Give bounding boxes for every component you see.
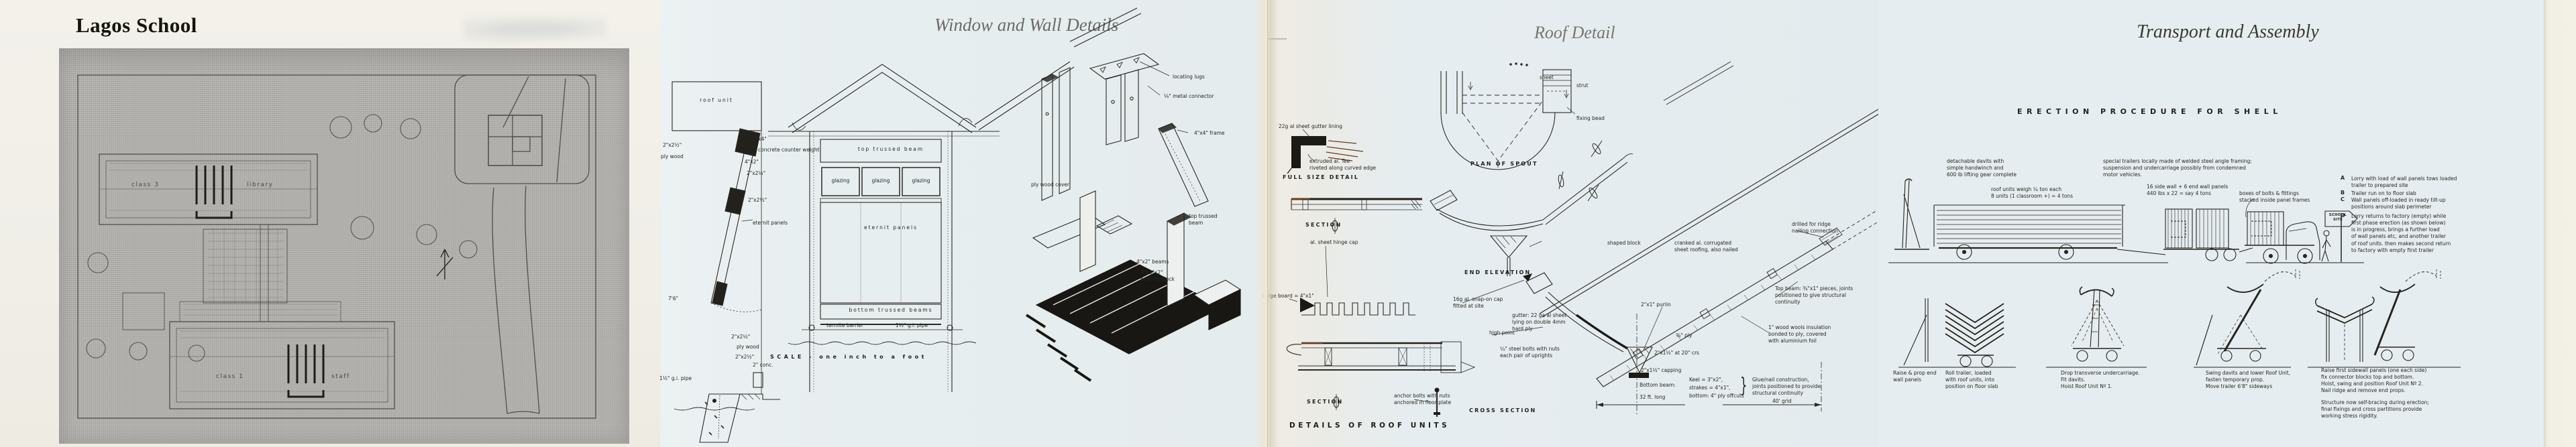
annotation-label: top trussed beam <box>830 146 951 153</box>
annotation-label: END ELEVATION <box>1464 269 1531 277</box>
annotation-label: bottom: 4" ply offcuts <box>1689 393 1744 399</box>
annotation-label: roof units weigh ¼ ton each 8 units (1 c… <box>1991 186 2073 200</box>
ink-bleed-ghost <box>463 11 607 46</box>
site-plan-photo <box>59 48 629 444</box>
annotation-label: 32 ft. long <box>1640 394 1665 401</box>
annotation-label: Structure now self-bracing during erecti… <box>2321 399 2429 420</box>
window-wall-drawing <box>661 0 1261 447</box>
annotation-label: 2"x2½" <box>748 197 767 204</box>
annotation-label: Bottom beam: <box>1640 382 1676 389</box>
annotation-label: sheet <box>1540 74 1554 81</box>
annotation-label: class 1 <box>216 373 244 381</box>
annotation-label: Keel = 3"x2", <box>1689 377 1723 383</box>
annotation-label: 1½" g.i. pipe <box>659 375 692 382</box>
annotation-label: gutter: 22 ga al sheet lying on double 4… <box>1512 312 1566 332</box>
annotation-label: termite barrier <box>826 322 863 329</box>
annotation-label: Swing davits and lower Roof Unit, fasten… <box>2206 370 2290 390</box>
annotation-label: Drop transverse undercarriage. Fit davit… <box>2061 370 2140 390</box>
annotation-label: 40' grid <box>1772 398 1792 405</box>
annotation-label: ⅛" metal connector <box>1164 93 1214 100</box>
annotation-label: SECTION <box>1307 399 1343 406</box>
annotation-label: Lorry with load of wall panels tows load… <box>2351 176 2457 189</box>
annotation-label: drilled for ridge nailing connection <box>1792 221 1838 235</box>
annotation-label: ⅜" ply <box>1676 332 1692 339</box>
annotation-label: eternit panels <box>830 225 951 231</box>
annotation-label: 4"x2" <box>745 159 759 166</box>
annotation-label: eternit panels <box>753 220 788 227</box>
annotation-label: ply wood <box>661 153 684 160</box>
annotation-label: SCALE - one inch to a foot <box>770 354 927 361</box>
annotation-label: D <box>2341 212 2345 220</box>
annotation-label: 2"x2½" <box>735 354 754 361</box>
annotation-label: 2"x1½" capping <box>1641 367 1681 374</box>
annotation-label: 4"x4" frame <box>1194 130 1225 137</box>
annotation-label: 2"x1" purlin <box>1641 302 1671 308</box>
annotation-label: concrete counter weight <box>758 147 820 153</box>
annotation-label: shaped block <box>1607 240 1641 247</box>
annotation-label: glazing <box>862 178 900 184</box>
annotation-label: 2"x2½" <box>747 170 765 177</box>
annotation-label: 4"x4" <box>753 136 767 143</box>
annotation-label: 16 side wall + 6 end wall panels 440 lbs… <box>2147 184 2228 197</box>
annotation-label: 2" conc. <box>753 362 773 369</box>
annotation-label: glazing <box>902 178 940 184</box>
annotation-label: C <box>2341 196 2345 204</box>
annotation-label: strut <box>1576 82 1589 89</box>
annotation-label: ¼" steel bolts with nuts each pair of up… <box>1500 346 1560 359</box>
annotation-label: anchor bolts with nuts anchored in floor… <box>1394 393 1451 406</box>
annotation-label: top trussed beam <box>1189 213 1218 227</box>
annotation-label: DETAILS OF ROOF UNITS <box>1289 421 1450 430</box>
annotation-label: Raise & prop end wall panels <box>1893 370 1936 383</box>
annotation-label: 1½" g.i. pipe <box>896 322 928 329</box>
annotation-label: locating lugs <box>1173 74 1205 80</box>
spine-line <box>1267 0 1268 447</box>
annotation-label: 2"x1½" at 20" crs <box>1654 350 1699 357</box>
annotation-label: Trailer run on to floor slab <box>2351 190 2416 197</box>
book-spread: Lagos School Window and Wall Details Roo… <box>0 0 2576 447</box>
annotation-label: 4"x2"x2" bearing block <box>1140 269 1175 283</box>
annotation-label: ply wood cover <box>1031 182 1069 188</box>
annotation-label: ply wood <box>737 344 759 350</box>
annotation-label: 4"x2" beams <box>1136 259 1169 265</box>
annotation-label: PLAN OF SPOUT <box>1470 161 1538 168</box>
annotation-label: detachable davits with simple handwinch … <box>1947 158 2017 178</box>
annotation-label: 16g al. snap-on cap fitted at site <box>1453 296 1503 310</box>
annotation-label: roof unit <box>683 97 750 104</box>
annotation-label: } <box>1740 373 1748 400</box>
annotation-label: Roll trailer, loaded with roof units, in… <box>1945 370 1998 390</box>
annotation-label: A <box>2341 175 2345 182</box>
annotation-label: fixing bead <box>1576 115 1605 122</box>
annotation-label: strakes = 4"x1", <box>1689 385 1730 391</box>
annotation-label: staff <box>331 373 350 381</box>
annotation-label: special trailers locally made of welded … <box>2103 158 2252 178</box>
annotation-label: bottom trussed beams <box>830 307 951 314</box>
site-plan-drawing <box>59 48 629 444</box>
page-title-lagos: Lagos School <box>76 13 197 38</box>
annotation-label: Glue/nail construction, joints positione… <box>1752 377 1821 397</box>
annotation-label: 2"x2½" <box>663 142 682 149</box>
annotation-label: boxes of bolts & fittings stacked inside… <box>2239 190 2310 204</box>
annotation-label: CROSS SECTION <box>1469 407 1536 415</box>
annotation-label: high point <box>1489 330 1515 336</box>
annotation-label: SCHOOL SITE <box>2325 213 2351 222</box>
annotation-label: al. sheet hinge cap <box>1310 239 1358 246</box>
annotation-label: SECTION <box>1305 222 1342 229</box>
page-right-edge <box>2544 0 2576 447</box>
annotation-label: Top beam: ¾"x1" pieces, joints positione… <box>1775 285 1853 306</box>
annotation-label: extruded al. Tee riveted along curved ed… <box>1309 158 1376 172</box>
annotation-label: library <box>247 181 273 189</box>
annotation-label: class 3 <box>131 181 159 189</box>
annotation-label: 2"x2½" <box>731 334 750 340</box>
annotation-label: Lorry returns to factory (empty) while f… <box>2351 213 2451 254</box>
annotation-label: Raise first sidewall panels (one each si… <box>2321 367 2426 395</box>
annotation-label: glazing <box>822 178 859 184</box>
annotation-label: 7'6" <box>668 296 678 302</box>
annotation-label: FULL SIZE DETAIL <box>1283 174 1359 182</box>
annotation-label: Wall panels off-loaded in ready tilt-up … <box>2351 197 2446 210</box>
annotation-label: cranked al. corrugated sheet roofing, al… <box>1674 240 1738 253</box>
annotation-label: 1" wood wools insulation bonded to ply, … <box>1768 324 1831 344</box>
annotation-label: 22g al sheet gutter lining <box>1279 123 1342 130</box>
